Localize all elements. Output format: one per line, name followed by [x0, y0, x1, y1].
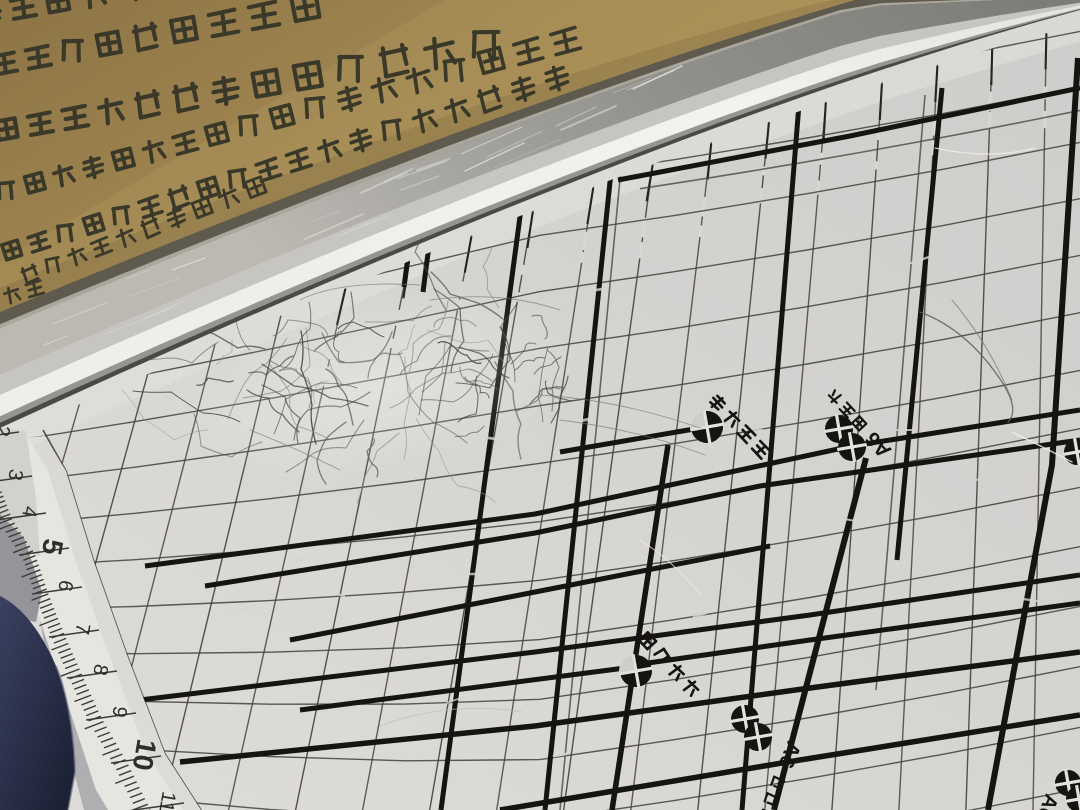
svg-text:11: 11 [154, 790, 179, 810]
svg-text:10: 10 [127, 737, 163, 773]
